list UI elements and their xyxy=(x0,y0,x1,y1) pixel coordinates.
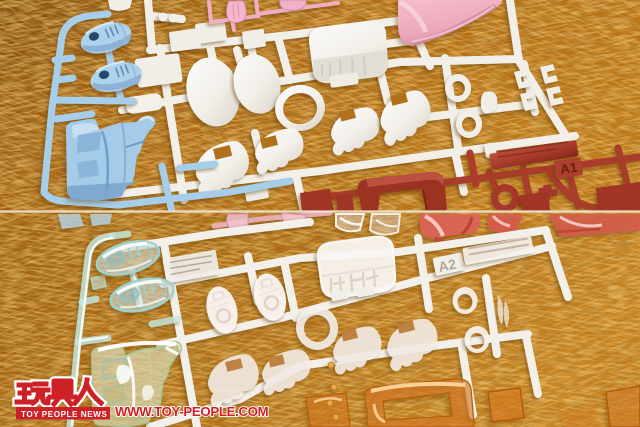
svg-text:A1: A1 xyxy=(559,160,579,178)
svg-text:WWW.TOY-PEOPLE.COM: WWW.TOY-PEOPLE.COM xyxy=(115,404,269,419)
svg-text:TOY PEOPLE NEWS: TOY PEOPLE NEWS xyxy=(21,410,107,419)
